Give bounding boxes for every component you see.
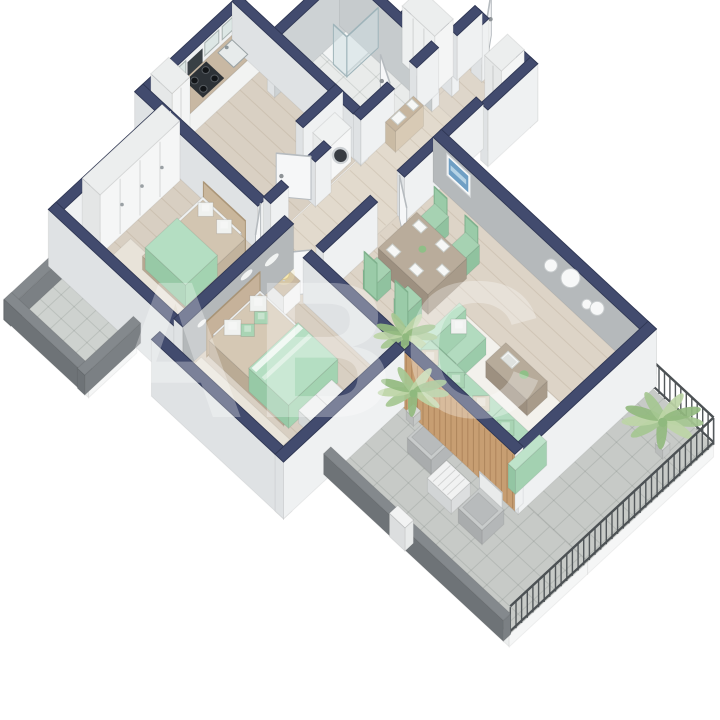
scene-canvas <box>0 0 720 720</box>
kitchen-faucet <box>225 46 229 50</box>
bed2-pillow-green-1 <box>254 312 267 325</box>
table-centerpiece-plant <box>419 246 427 253</box>
bed2-pillow-white-2 <box>224 320 241 336</box>
bed1-pillow-1 <box>198 202 213 216</box>
coffee-table-plant <box>519 370 528 379</box>
bed2-pillow-green-2 <box>241 324 254 337</box>
bed2-pillow-white-1 <box>250 296 267 312</box>
sofa-pillow-5 <box>451 319 467 334</box>
bed1-pillow-2 <box>217 220 232 234</box>
floor-plan-3d-render: ABC <box>0 0 720 720</box>
